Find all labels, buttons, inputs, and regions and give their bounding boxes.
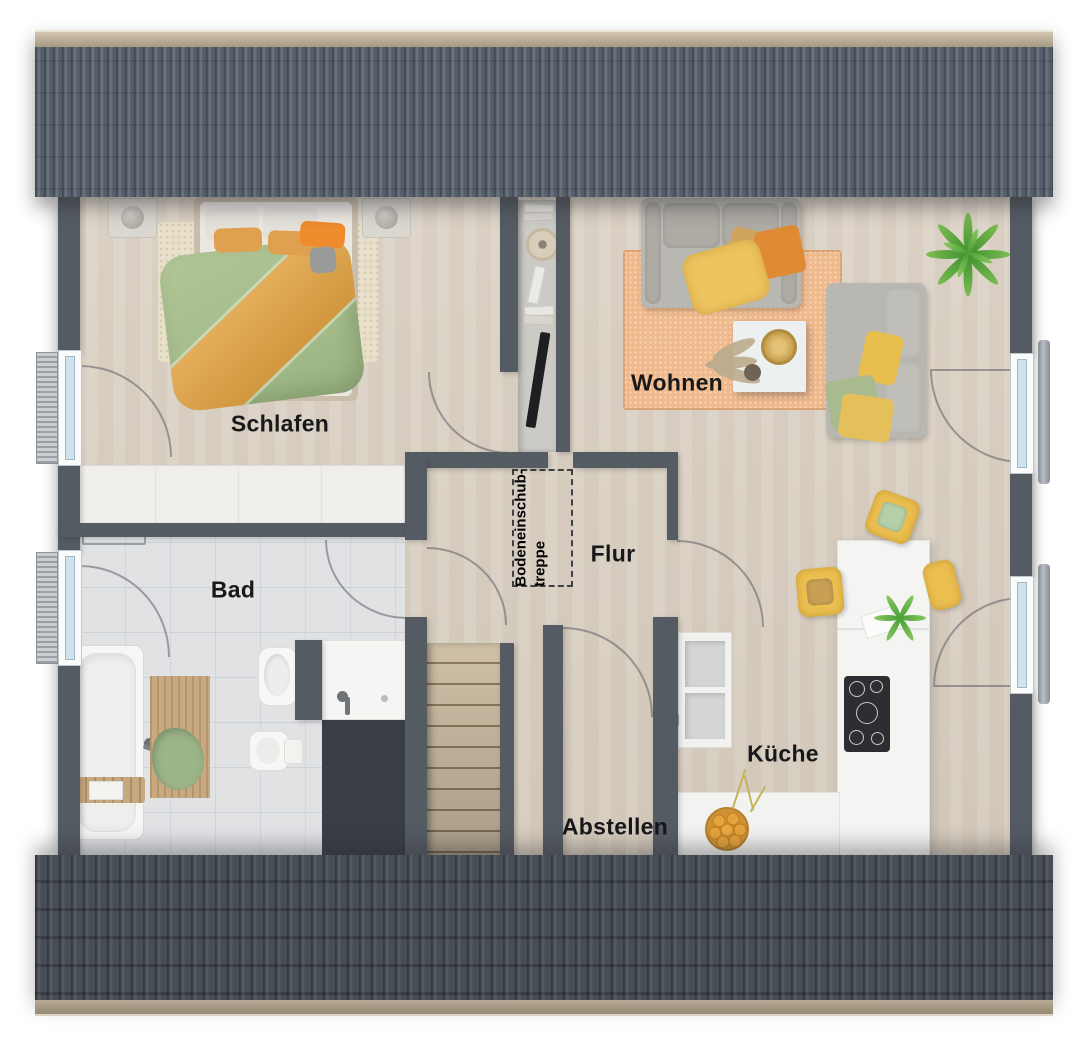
wall-niche-right: [556, 197, 570, 452]
wardrobe: [72, 465, 405, 525]
round-basket: [526, 228, 559, 261]
wall-storage-left: [543, 625, 563, 858]
wall-stairs-right: [500, 643, 514, 858]
tall-cabinet: [678, 632, 732, 748]
fruit-bowl: [704, 806, 750, 852]
wall-bedroom-right: [500, 197, 518, 372]
staircase: [427, 643, 500, 858]
kitchen-island: [837, 540, 930, 860]
wall-bath-right-upper: [405, 460, 427, 540]
wall-shower-divider: [295, 640, 322, 720]
wall-left: [58, 462, 80, 552]
wooden-bath-mat: [150, 676, 210, 798]
window-glass: [1017, 582, 1027, 688]
sofa-back-cushion: [663, 203, 720, 248]
roof-bottom: [35, 855, 1053, 1016]
dark-void-area: [322, 718, 405, 858]
wall-left: [58, 662, 80, 858]
nightstand-right: [362, 198, 411, 238]
chair-cushion-green: [875, 500, 908, 533]
cabinet-niche: [685, 693, 725, 739]
burner-icon: [856, 702, 878, 724]
room-label-bedroom: Schlafen: [231, 411, 329, 438]
green-towel: [152, 728, 204, 790]
wall-right: [1010, 197, 1032, 355]
vase: [744, 364, 761, 381]
stairs-shadow: [427, 643, 500, 858]
nightstand-left: [108, 198, 157, 238]
window-glass: [1017, 359, 1027, 468]
chair-cushion-tan: [806, 578, 834, 606]
burner-icon: [871, 732, 884, 745]
attic-stairs-label-line1: Bodeneinschub-: [512, 469, 531, 587]
books-stack: [523, 211, 554, 221]
toilet-seat: [256, 737, 280, 764]
wall-right: [1010, 470, 1032, 576]
washbasin-bowl: [264, 654, 290, 696]
room-label-hall: Flur: [591, 541, 636, 568]
kitchen-counter: [676, 792, 840, 860]
cooktop: [844, 676, 890, 752]
toilet-flush: [284, 739, 303, 764]
wall-left: [58, 197, 80, 352]
palm-plant: [928, 207, 1008, 292]
room-label-kitchen: Küche: [747, 741, 819, 768]
lamp-icon: [121, 206, 144, 229]
balcony-railing: [1038, 564, 1050, 704]
window-glass: [65, 556, 75, 660]
book: [89, 781, 123, 800]
room-label-living: Wohnen: [631, 370, 723, 397]
bed-pillow-bright-orange: [299, 220, 346, 248]
wall-bath-top: [58, 523, 405, 537]
burner-icon: [870, 680, 883, 693]
radiator: [36, 352, 58, 464]
shower-bar: [345, 697, 350, 715]
wall-hall-right: [667, 468, 678, 540]
wall-bath-right-lower: [405, 617, 427, 858]
radiator: [36, 552, 58, 664]
sofa-armrest: [645, 202, 661, 304]
wall-hall-top-right: [573, 452, 678, 468]
balcony-railing: [1038, 340, 1050, 484]
roof-top: [35, 30, 1053, 197]
toilet: [249, 731, 289, 771]
roof-gutter: [35, 1000, 1053, 1016]
bed-pillow-orange-left: [214, 227, 263, 253]
bathtub-basin: [78, 653, 136, 832]
washbasin: [258, 647, 298, 706]
window-glass: [65, 356, 75, 460]
drain-icon: [381, 695, 388, 702]
roof-ridge-beam: [35, 30, 1053, 47]
island-plant: [880, 595, 920, 635]
bar-chair: [795, 566, 845, 618]
lamp-icon: [375, 206, 398, 229]
attic-stairs-label-line2: treppe: [531, 469, 550, 587]
room-label-storage: Abstellen: [562, 814, 668, 841]
burner-icon: [849, 681, 865, 697]
gold-tray: [761, 329, 797, 365]
room-label-bath: Bad: [211, 577, 255, 604]
shower: [322, 640, 407, 720]
floorplan-attic-storey: Schlafen Wohnen Bad Flur Küche Abstellen…: [0, 0, 1090, 1051]
wall-right: [1010, 690, 1032, 858]
coffee-table: [733, 321, 806, 392]
burner-icon: [849, 730, 864, 745]
room-label-attic-stairs: Bodeneinschub- treppe: [512, 469, 550, 587]
books-stack: [523, 314, 554, 325]
throw-blanket-yellow: [837, 393, 895, 444]
bathtub: [70, 645, 144, 840]
bed-folded-blanket: [309, 246, 337, 274]
cabinet-niche: [685, 641, 725, 687]
